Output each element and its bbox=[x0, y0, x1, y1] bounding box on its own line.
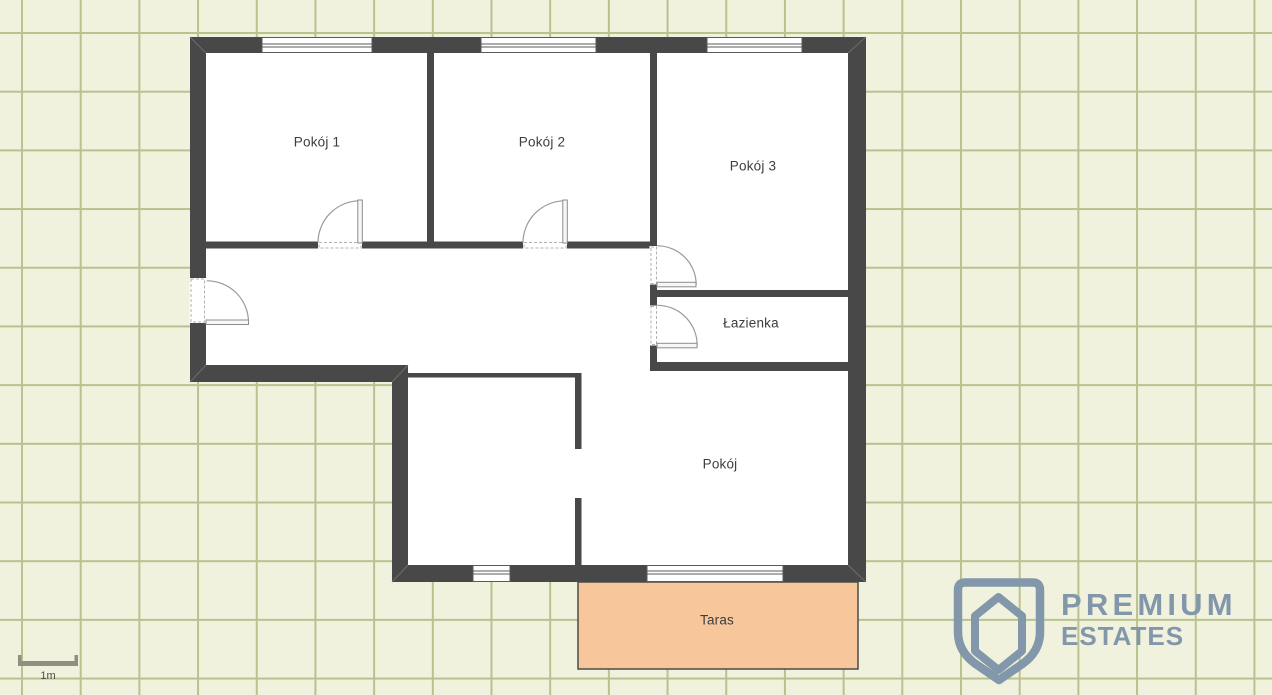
wall-pokoj3-lazienka bbox=[650, 290, 848, 297]
window-pokoj3 bbox=[707, 38, 802, 53]
wall-corridor-top bbox=[206, 242, 657, 249]
room-label-pokoj: Pokój bbox=[703, 457, 738, 472]
window-pokoj1 bbox=[262, 38, 372, 53]
window-pokoj-bottom bbox=[647, 566, 783, 582]
wall-lazienka-left bbox=[650, 346, 657, 363]
wall-thin-corridor-bottom bbox=[408, 373, 582, 378]
floorplan-page: { "page": { "type": "real-estate floor p… bbox=[0, 0, 1272, 695]
room-label-taras: Taras bbox=[700, 613, 734, 628]
room-label-pokoj-1: Pokój 1 bbox=[294, 135, 340, 150]
wall-thin-room-right-lower bbox=[575, 498, 582, 565]
brand-name-premium: PREMIUM bbox=[1061, 589, 1237, 620]
window-pokoj2 bbox=[481, 38, 596, 53]
room-label-pokoj-2: Pokój 2 bbox=[519, 135, 565, 150]
wall-thin-room-right-upper bbox=[575, 378, 582, 450]
scale-label: 1m bbox=[40, 670, 55, 682]
brand-name-estates: ESTATES bbox=[1061, 623, 1184, 649]
wall-pokoj2-pokoj3 bbox=[650, 53, 657, 246]
room-label-pokoj-3: Pokój 3 bbox=[730, 159, 776, 174]
scale-bar bbox=[18, 655, 78, 666]
shield-house-icon bbox=[958, 583, 1040, 681]
window-bottom-left-room bbox=[473, 566, 510, 582]
building-outline bbox=[190, 37, 866, 582]
room-label-lazienka: Łazienka bbox=[723, 316, 779, 331]
floor bbox=[206, 53, 848, 565]
wall-lazienka-bottom bbox=[650, 362, 848, 371]
wall-pokoj1-pokoj2 bbox=[427, 53, 434, 242]
floorplan-canvas: Pokój 1 Pokój 2 Pokój 3 Łazienka Pokój T… bbox=[0, 0, 1272, 695]
